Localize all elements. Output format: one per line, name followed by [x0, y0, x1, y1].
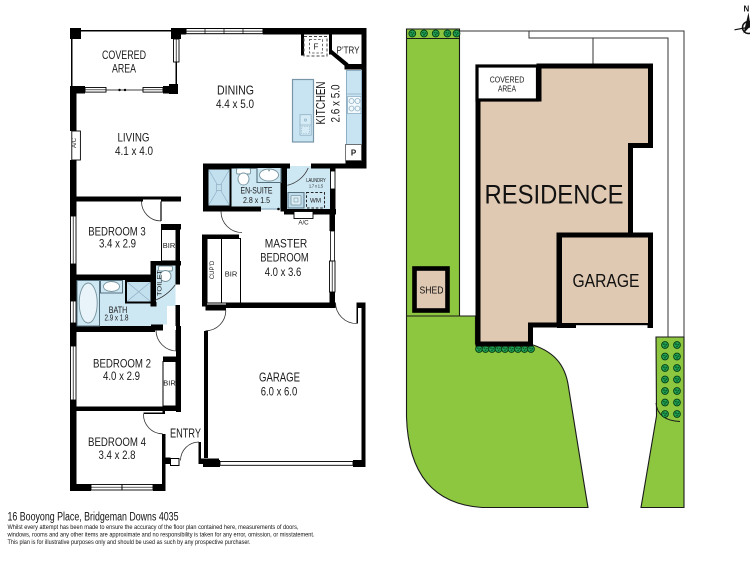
- svg-text:A/C: A/C: [298, 220, 309, 227]
- svg-text:GARAGE: GARAGE: [259, 371, 300, 385]
- svg-text:COVERED: COVERED: [102, 48, 146, 62]
- svg-text:F: F: [314, 43, 319, 52]
- svg-text:3.4 x 2.8: 3.4 x 2.8: [99, 450, 136, 462]
- svg-text:EN-SUITE: EN-SUITE: [241, 186, 273, 196]
- svg-text:4.0 x 3.6: 4.0 x 3.6: [265, 267, 302, 279]
- svg-text:6.0 x 6.0: 6.0 x 6.0: [261, 387, 298, 399]
- svg-text:2.9 x 1.8: 2.9 x 1.8: [105, 313, 129, 323]
- svg-text:DINING: DINING: [217, 84, 254, 98]
- svg-text:MASTER: MASTER: [265, 237, 308, 251]
- svg-text:P’TRY: P’TRY: [337, 46, 360, 57]
- svg-text:N: N: [744, 5, 750, 14]
- svg-text:P: P: [351, 149, 357, 158]
- svg-text:AREA: AREA: [112, 62, 136, 76]
- svg-text:TOILET: TOILET: [158, 270, 164, 296]
- svg-text:BEDROOM 4: BEDROOM 4: [88, 435, 146, 449]
- svg-text:4.1 x 4.0: 4.1 x 4.0: [115, 146, 153, 158]
- svg-text:GARAGE: GARAGE: [573, 270, 640, 291]
- svg-text:ENTRY: ENTRY: [170, 427, 201, 441]
- svg-text:BEDROOM 2: BEDROOM 2: [93, 357, 151, 371]
- svg-text:A/C: A/C: [72, 137, 78, 148]
- svg-text:2.6 x 5.0: 2.6 x 5.0: [329, 84, 343, 122]
- svg-text:This plan is for illustrative: This plan is for illustrative purposes o…: [8, 539, 251, 546]
- svg-text:3.4 x 2.9: 3.4 x 2.9: [99, 239, 136, 251]
- svg-text:RESIDENCE: RESIDENCE: [485, 180, 624, 210]
- svg-text:LIVING: LIVING: [118, 131, 150, 145]
- svg-text:AREA: AREA: [498, 84, 516, 94]
- svg-text:BEDROOM 3: BEDROOM 3: [88, 225, 146, 239]
- svg-text:1.7 x 1.5: 1.7 x 1.5: [309, 184, 323, 190]
- svg-text:BIR: BIR: [163, 241, 176, 250]
- svg-text:SHED: SHED: [420, 286, 444, 297]
- svg-text:CUP’D: CUP’D: [210, 260, 216, 279]
- svg-text:BIR: BIR: [163, 379, 176, 388]
- svg-text:BEDROOM: BEDROOM: [260, 251, 309, 265]
- svg-text:WM: WM: [310, 198, 321, 205]
- svg-text:Whilst every attempt has been: Whilst every attempt has been made to en…: [8, 524, 299, 531]
- svg-text:BIR: BIR: [225, 270, 238, 279]
- svg-text:4.0 x 2.9: 4.0 x 2.9: [103, 371, 140, 383]
- svg-text:2.8 x 1.5: 2.8 x 1.5: [243, 195, 270, 205]
- svg-text:16 Booyong Place, Bridgeman Do: 16 Booyong Place, Bridgeman Downs 4035: [8, 512, 179, 524]
- svg-text:windows, rooms and any other i: windows, rooms and any other items are a…: [7, 532, 315, 539]
- svg-text:4.4 x 5.0: 4.4 x 5.0: [216, 99, 254, 111]
- svg-text:KITCHEN: KITCHEN: [313, 82, 328, 125]
- svg-text:LAUNDRY: LAUNDRY: [306, 178, 326, 184]
